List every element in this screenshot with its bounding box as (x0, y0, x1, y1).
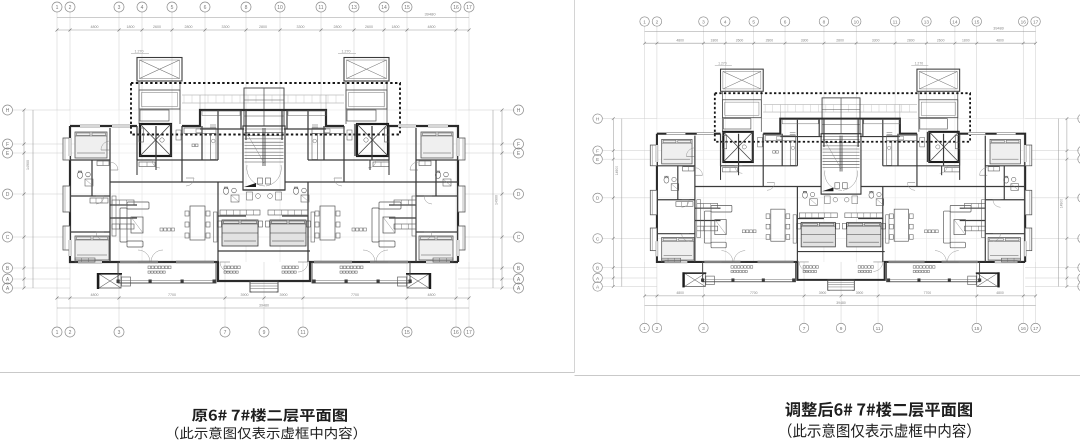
svg-text:3: 3 (702, 19, 705, 25)
svg-text:2800: 2800 (259, 25, 267, 29)
svg-text:1800: 1800 (127, 25, 135, 29)
svg-text:7700: 7700 (750, 291, 758, 295)
svg-text:1: 1 (643, 326, 646, 332)
svg-text:1.270: 1.270 (718, 61, 727, 65)
svg-text:3900: 3900 (241, 293, 249, 297)
svg-text:2: 2 (69, 5, 72, 11)
svg-text:2: 2 (656, 326, 659, 332)
svg-text:13: 13 (351, 5, 357, 11)
svg-text:E: E (596, 157, 599, 163)
svg-text:7: 7 (224, 330, 227, 336)
svg-text:1.270: 1.270 (915, 61, 924, 65)
svg-text:2800: 2800 (836, 38, 844, 42)
svg-text:3300: 3300 (297, 25, 305, 29)
svg-text:16: 16 (453, 5, 459, 11)
svg-text:39480: 39480 (424, 12, 436, 17)
svg-text:16: 16 (1021, 326, 1027, 332)
svg-text:4800: 4800 (428, 25, 436, 29)
svg-text:16: 16 (1021, 19, 1027, 25)
svg-text:2600: 2600 (937, 38, 945, 42)
svg-text:1: 1 (643, 19, 646, 25)
svg-text:13: 13 (924, 19, 930, 25)
svg-text:C: C (517, 235, 521, 241)
svg-text:7700: 7700 (351, 293, 359, 297)
svg-text:2800: 2800 (334, 25, 342, 29)
svg-text:7700: 7700 (924, 291, 932, 295)
svg-text:11: 11 (300, 330, 305, 336)
svg-text:3300: 3300 (222, 25, 230, 29)
svg-text:C: C (6, 235, 10, 241)
svg-text:9: 9 (263, 330, 266, 336)
svg-text:11: 11 (876, 326, 881, 332)
svg-text:3900: 3900 (280, 293, 288, 297)
svg-text:3300: 3300 (801, 38, 809, 42)
svg-text:3300: 3300 (872, 38, 880, 42)
svg-text:2600: 2600 (153, 25, 161, 29)
svg-text:8: 8 (823, 19, 826, 25)
svg-text:6: 6 (784, 19, 787, 25)
svg-text:H: H (6, 108, 10, 114)
svg-text:3: 3 (118, 5, 121, 11)
svg-text:16: 16 (453, 330, 459, 336)
svg-text:15: 15 (404, 330, 410, 336)
svg-text:14900: 14900 (1060, 199, 1064, 209)
svg-text:4800: 4800 (996, 38, 1004, 42)
svg-text:2800: 2800 (766, 38, 774, 42)
svg-text:11: 11 (893, 19, 898, 25)
svg-text:14: 14 (952, 19, 958, 25)
svg-text:H: H (596, 117, 600, 123)
svg-text:4800: 4800 (91, 25, 99, 29)
svg-text:2800: 2800 (185, 25, 193, 29)
svg-text:1: 1 (56, 5, 59, 11)
svg-text:10: 10 (854, 19, 860, 25)
svg-text:1800: 1800 (392, 25, 400, 29)
svg-text:D: D (6, 192, 10, 198)
svg-text:17: 17 (466, 330, 472, 336)
svg-text:4800: 4800 (676, 38, 684, 42)
svg-text:15: 15 (974, 19, 980, 25)
svg-text:17: 17 (1033, 326, 1039, 332)
svg-text:5: 5 (171, 5, 174, 11)
svg-text:D: D (517, 192, 521, 198)
svg-text:B: B (596, 266, 599, 272)
svg-text:C: C (596, 236, 600, 242)
svg-text:11: 11 (318, 5, 323, 11)
svg-text:39480: 39480 (259, 304, 269, 308)
svg-text:7: 7 (803, 326, 806, 332)
svg-text:6: 6 (204, 5, 207, 11)
svg-text:3900: 3900 (819, 291, 827, 295)
svg-text:8: 8 (245, 5, 248, 11)
svg-text:3: 3 (702, 326, 705, 332)
svg-text:17: 17 (1033, 19, 1039, 25)
svg-text:D: D (596, 196, 600, 202)
svg-text:17: 17 (466, 5, 472, 11)
svg-text:F: F (517, 142, 520, 148)
svg-text:1800: 1800 (962, 38, 970, 42)
svg-text:2600: 2600 (365, 25, 373, 29)
svg-text:4: 4 (141, 5, 144, 11)
svg-text:F: F (6, 142, 9, 148)
svg-text:14900: 14900 (615, 166, 619, 176)
svg-text:2: 2 (69, 330, 72, 336)
svg-text:9: 9 (840, 326, 843, 332)
svg-text:2800: 2800 (907, 38, 915, 42)
svg-text:4800: 4800 (91, 293, 99, 297)
svg-text:14: 14 (381, 5, 387, 11)
svg-text:H: H (517, 108, 521, 114)
svg-text:2: 2 (656, 19, 659, 25)
svg-text:14900: 14900 (26, 160, 30, 170)
svg-text:39480: 39480 (836, 301, 846, 305)
svg-text:14900: 14900 (495, 195, 499, 205)
svg-text:1800: 1800 (711, 38, 719, 42)
svg-text:5: 5 (752, 19, 755, 25)
svg-text:39480: 39480 (993, 27, 1004, 31)
svg-text:1: 1 (56, 330, 59, 336)
svg-text:3: 3 (118, 330, 121, 336)
svg-text:15: 15 (404, 5, 410, 11)
svg-text:1.270: 1.270 (342, 50, 351, 54)
svg-text:4: 4 (724, 19, 727, 25)
svg-text:10: 10 (277, 5, 283, 11)
svg-text:7700: 7700 (168, 293, 176, 297)
svg-text:1.270: 1.270 (135, 50, 144, 54)
svg-text:15: 15 (974, 326, 980, 332)
svg-text:4800: 4800 (676, 291, 684, 295)
svg-text:4800: 4800 (996, 291, 1004, 295)
svg-text:4800: 4800 (428, 293, 436, 297)
svg-text:3900: 3900 (856, 291, 864, 295)
svg-text:2600: 2600 (736, 38, 744, 42)
svg-text:F: F (596, 149, 599, 155)
